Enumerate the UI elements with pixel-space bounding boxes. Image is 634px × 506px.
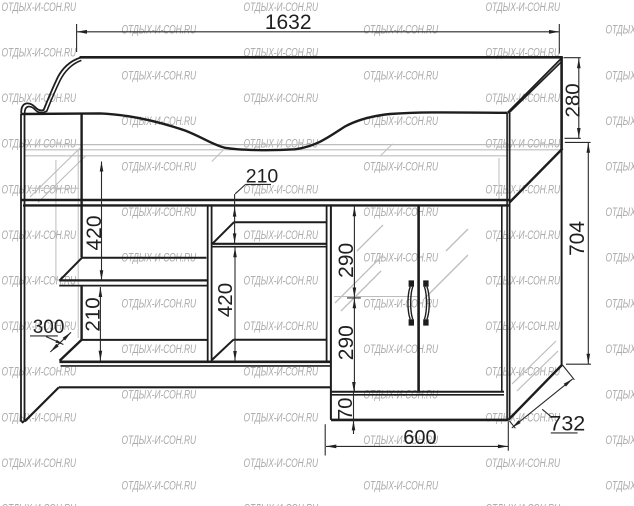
svg-text:ОТДЫХ-И-СОН.RU: ОТДЫХ-И-СОН.RU [2, 458, 77, 471]
svg-text:ОТДЫХ-И-СОН.RU: ОТДЫХ-И-СОН.RU [486, 275, 561, 288]
svg-text:ОТДЫХ-И-СОН.RU: ОТДЫХ-И-СОН.RU [606, 298, 634, 311]
svg-text:ОТДЫХ-И-СОН.RU: ОТДЫХ-И-СОН.RU [122, 389, 197, 402]
svg-text:ОТДЫХ-И-СОН.RU: ОТДЫХ-И-СОН.RU [244, 321, 319, 334]
svg-text:ОТДЫХ-И-СОН.RU: ОТДЫХ-И-СОН.RU [606, 253, 634, 266]
svg-text:ОТДЫХ-И-СОН.RU: ОТДЫХ-И-СОН.RU [364, 481, 439, 494]
svg-text:ОТДЫХ-И-СОН.RU: ОТДЫХ-И-СОН.RU [2, 93, 77, 106]
svg-text:ОТДЫХ-И-СОН.RU: ОТДЫХ-И-СОН.RU [364, 207, 439, 220]
svg-text:280: 280 [561, 83, 584, 117]
svg-text:ОТДЫХ-И-СОН.RU: ОТДЫХ-И-СОН.RU [244, 412, 319, 425]
svg-text:420: 420 [214, 283, 237, 317]
svg-text:ОТДЫХ-И-СОН.RU: ОТДЫХ-И-СОН.RU [122, 161, 197, 174]
svg-text:ОТДЫХ-И-СОН.RU: ОТДЫХ-И-СОН.RU [244, 275, 319, 288]
svg-text:ОТДЫХ-И-СОН.RU: ОТДЫХ-И-СОН.RU [122, 70, 197, 83]
svg-text:ОТДЫХ-И-СОН.RU: ОТДЫХ-И-СОН.RU [606, 116, 634, 129]
svg-text:ОТДЫХ-И-СОН.RU: ОТДЫХ-И-СОН.RU [486, 321, 561, 334]
svg-text:ОТДЫХ-И-СОН.RU: ОТДЫХ-И-СОН.RU [244, 230, 319, 243]
svg-text:ОТДЫХ-И-СОН.RU: ОТДЫХ-И-СОН.RU [122, 25, 197, 38]
svg-text:ОТДЫХ-И-СОН.RU: ОТДЫХ-И-СОН.RU [122, 344, 197, 357]
svg-text:ОТДЫХ-И-СОН.RU: ОТДЫХ-И-СОН.RU [122, 253, 197, 266]
svg-text:ОТДЫХ-И-СОН.RU: ОТДЫХ-И-СОН.RU [364, 298, 439, 311]
svg-text:704: 704 [566, 221, 589, 256]
svg-text:70: 70 [335, 398, 357, 420]
svg-text:ОТДЫХ-И-СОН.RU: ОТДЫХ-И-СОН.RU [606, 344, 634, 357]
svg-text:ОТДЫХ-И-СОН.RU: ОТДЫХ-И-СОН.RU [606, 389, 634, 402]
svg-text:ОТДЫХ-И-СОН.RU: ОТДЫХ-И-СОН.RU [364, 344, 439, 357]
svg-text:ОТДЫХ-И-СОН.RU: ОТДЫХ-И-СОН.RU [486, 184, 561, 197]
svg-text:ОТДЫХ-И-СОН.RU: ОТДЫХ-И-СОН.RU [364, 161, 439, 174]
svg-text:210: 210 [81, 297, 104, 331]
svg-text:ОТДЫХ-И-СОН.RU: ОТДЫХ-И-СОН.RU [486, 2, 561, 15]
svg-text:290: 290 [335, 243, 358, 278]
svg-text:ОТДЫХ-И-СОН.RU: ОТДЫХ-И-СОН.RU [122, 298, 197, 311]
svg-text:ОТДЫХ-И-СОН.RU: ОТДЫХ-И-СОН.RU [364, 25, 439, 38]
svg-text:ОТДЫХ-И-СОН.RU: ОТДЫХ-И-СОН.RU [606, 435, 634, 448]
svg-text:600: 600 [403, 427, 436, 449]
svg-text:ОТДЫХ-И-СОН.RU: ОТДЫХ-И-СОН.RU [606, 70, 634, 83]
svg-text:420: 420 [83, 215, 106, 250]
svg-text:290: 290 [335, 325, 358, 360]
svg-text:ОТДЫХ-И-СОН.RU: ОТДЫХ-И-СОН.RU [486, 230, 561, 243]
svg-text:ОТДЫХ-И-СОН.RU: ОТДЫХ-И-СОН.RU [244, 93, 319, 106]
svg-text:ОТДЫХ-И-СОН.RU: ОТДЫХ-И-СОН.RU [2, 47, 77, 60]
svg-text:ОТДЫХ-И-СОН.RU: ОТДЫХ-И-СОН.RU [122, 207, 197, 220]
svg-text:ОТДЫХ-И-СОН.RU: ОТДЫХ-И-СОН.RU [2, 184, 77, 197]
svg-text:ОТДЫХ-И-СОН.RU: ОТДЫХ-И-СОН.RU [2, 367, 77, 380]
svg-text:ОТДЫХ-И-СОН.RU: ОТДЫХ-И-СОН.RU [122, 435, 197, 448]
svg-text:ОТДЫХ-И-СОН.RU: ОТДЫХ-И-СОН.RU [606, 161, 634, 174]
svg-text:ОТДЫХ-И-СОН.RU: ОТДЫХ-И-СОН.RU [486, 458, 561, 471]
svg-text:ОТДЫХ-И-СОН.RU: ОТДЫХ-И-СОН.RU [364, 70, 439, 83]
svg-text:ОТДЫХ-И-СОН.RU: ОТДЫХ-И-СОН.RU [244, 458, 319, 471]
svg-text:ОТДЫХ-И-СОН.RU: ОТДЫХ-И-СОН.RU [2, 2, 77, 15]
svg-text:ОТДЫХ-И-СОН.RU: ОТДЫХ-И-СОН.RU [606, 481, 634, 494]
svg-text:ОТДЫХ-И-СОН.RU: ОТДЫХ-И-СОН.RU [244, 367, 319, 380]
svg-text:ОТДЫХ-И-СОН.RU: ОТДЫХ-И-СОН.RU [122, 481, 197, 494]
svg-text:ОТДЫХ-И-СОН.RU: ОТДЫХ-И-СОН.RU [2, 230, 77, 243]
svg-text:ОТДЫХ-И-СОН.RU: ОТДЫХ-И-СОН.RU [606, 25, 634, 38]
svg-text:300: 300 [33, 317, 65, 338]
svg-text:ОТДЫХ-И-СОН.RU: ОТДЫХ-И-СОН.RU [606, 207, 634, 220]
svg-text:ОТДЫХ-И-СОН.RU: ОТДЫХ-И-СОН.RU [2, 412, 77, 425]
svg-text:732: 732 [549, 411, 585, 435]
svg-text:ОТДЫХ-И-СОН.RU: ОТДЫХ-И-СОН.RU [364, 116, 439, 129]
svg-text:1632: 1632 [265, 11, 312, 34]
